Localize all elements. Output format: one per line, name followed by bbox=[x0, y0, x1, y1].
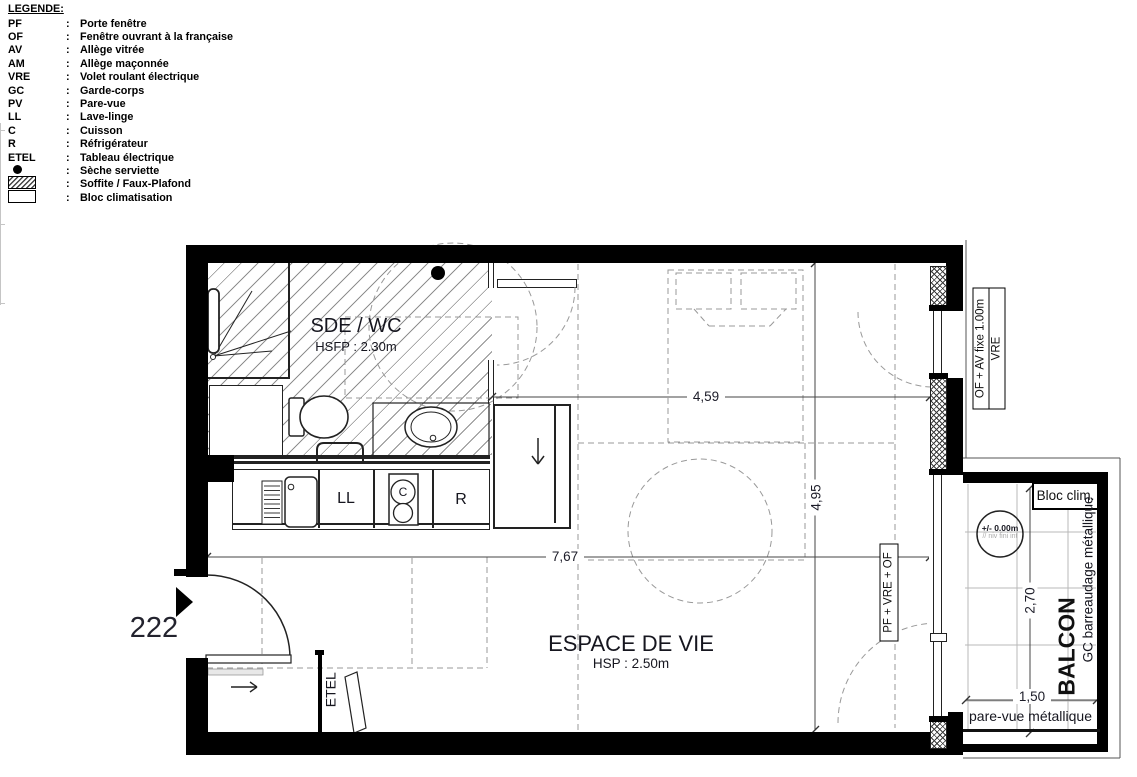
entry-arrow bbox=[231, 682, 257, 692]
living-ceiling-height: HSP : 2.50m bbox=[531, 657, 731, 672]
window-cap bbox=[929, 373, 948, 379]
window-of-av-label-box: OF + AV fixe 1.00m VRE bbox=[973, 288, 1006, 410]
etel-panel-door bbox=[345, 672, 366, 733]
bathroom-ceiling-height: HSFP : 2.30m bbox=[276, 340, 436, 354]
balcony-railing-label: GC barreaudage métallique bbox=[1082, 494, 1097, 664]
white-box-icon bbox=[8, 190, 36, 203]
page-frame-tick bbox=[0, 303, 5, 304]
wardrobe bbox=[493, 404, 571, 529]
page-frame-tick bbox=[0, 224, 5, 225]
balcony-wall-bottom bbox=[963, 744, 1108, 752]
page-frame-edge bbox=[0, 123, 1, 305]
bathroom-name: SDE / WC bbox=[276, 315, 436, 337]
legend-row-gc: GC:Garde-corps bbox=[8, 84, 268, 97]
balcony-pare-vue-line bbox=[963, 729, 1100, 732]
entry-threshold bbox=[208, 669, 263, 675]
hatch-box-icon bbox=[8, 176, 36, 189]
wall-bottom bbox=[186, 732, 960, 755]
window-of-av-line1: OF + AV fixe 1.00m bbox=[974, 289, 990, 409]
etel-partition-cap bbox=[315, 650, 324, 655]
level-marker-value: +/- 0.00m bbox=[977, 524, 1023, 533]
counter-divider bbox=[432, 469, 434, 528]
entry-door-swing-arc bbox=[207, 575, 290, 658]
wall-left-block bbox=[208, 455, 234, 482]
dim-living-width: 4,59 bbox=[687, 389, 725, 404]
dim-living-depth: 4,95 bbox=[809, 480, 824, 516]
window-of-av-line2: VRE bbox=[990, 289, 1005, 409]
balcony-door-label-box: PF + VRE + OF bbox=[880, 544, 899, 642]
legend-row-c: C:Cuisson bbox=[8, 124, 268, 137]
washer-label: LL bbox=[331, 490, 361, 508]
legend-row-pv: PV:Pare-vue bbox=[8, 97, 268, 110]
level-marker-note: // niv fini int bbox=[977, 533, 1023, 541]
kitchen-back-wall-gap bbox=[234, 459, 490, 461]
counter-divider bbox=[373, 469, 375, 528]
fridge-label: R bbox=[446, 491, 476, 509]
balcony-wall-right bbox=[1097, 472, 1108, 749]
balcony-name: BALCON bbox=[1054, 600, 1079, 696]
floor-plan-page: LEGENDE: PF:Porte fenêtre OF:Fenêtre ouv… bbox=[0, 0, 1137, 777]
legend-row-vre: VRE:Volet roulant électrique bbox=[8, 71, 268, 84]
legend-row-am: AM:Allège maçonnée bbox=[8, 57, 268, 70]
balcony-door-glazing bbox=[929, 475, 948, 718]
kitchen-counter-front-line bbox=[232, 523, 490, 525]
cooktop-label: C bbox=[396, 486, 410, 499]
living-room-name: ESPACE DE VIE bbox=[531, 632, 731, 656]
wall-insulation-strip bbox=[930, 721, 947, 749]
wall-insulation-strip bbox=[930, 378, 947, 475]
window-of-av bbox=[929, 311, 948, 375]
wall-top bbox=[186, 245, 963, 263]
bed-outline bbox=[668, 270, 803, 442]
wall-right-pier-top bbox=[946, 263, 963, 311]
unit-number: 222 bbox=[128, 613, 180, 645]
bathroom-door-swing-arc bbox=[497, 287, 575, 365]
legend-row-pf: PF:Porte fenêtre bbox=[8, 17, 268, 30]
legend-title: LEGENDE: bbox=[8, 3, 268, 15]
bathroom-partition-stub bbox=[488, 263, 494, 288]
dim-total-width: 7,67 bbox=[546, 549, 584, 564]
technical-shaft bbox=[209, 385, 283, 457]
balcony-door-joint bbox=[930, 633, 947, 642]
legend-row-r: R:Réfrigérateur bbox=[8, 138, 268, 151]
counter-divider bbox=[318, 469, 320, 528]
legend-row-of: OF:Fenêtre ouvrant à la française bbox=[8, 30, 268, 43]
legend: LEGENDE: PF:Porte fenêtre OF:Fenêtre ouv… bbox=[8, 3, 268, 204]
etel-label: ETEL bbox=[323, 660, 338, 720]
pare-vue-label: pare-vue métallique bbox=[963, 709, 1098, 724]
wall-door-nub bbox=[174, 569, 186, 576]
turning-circle-living bbox=[628, 459, 772, 603]
legend-row-ll: LL:Lave-linge bbox=[8, 111, 268, 124]
legend-row-bloc-clim: :Bloc climatisation bbox=[8, 191, 268, 204]
legend-row-etel: ETEL:Tableau électrique bbox=[8, 151, 268, 164]
dot-icon bbox=[13, 165, 22, 174]
entry-door-leaf bbox=[206, 655, 291, 663]
bathroom-partition-stub bbox=[488, 360, 494, 404]
wall-left-upper bbox=[186, 245, 208, 577]
bathroom-door-leaf bbox=[497, 279, 577, 288]
dim-balcony-depth: 1,50 bbox=[1013, 689, 1051, 704]
dim-balcony-width: 2,70 bbox=[1023, 583, 1038, 619]
window-swing-arc bbox=[858, 312, 933, 387]
legend-row-av: AV:Allège vitrée bbox=[8, 44, 268, 57]
page-frame-tick bbox=[0, 130, 5, 131]
window-cap bbox=[929, 716, 948, 722]
wardrobe-front-line bbox=[554, 406, 556, 523]
